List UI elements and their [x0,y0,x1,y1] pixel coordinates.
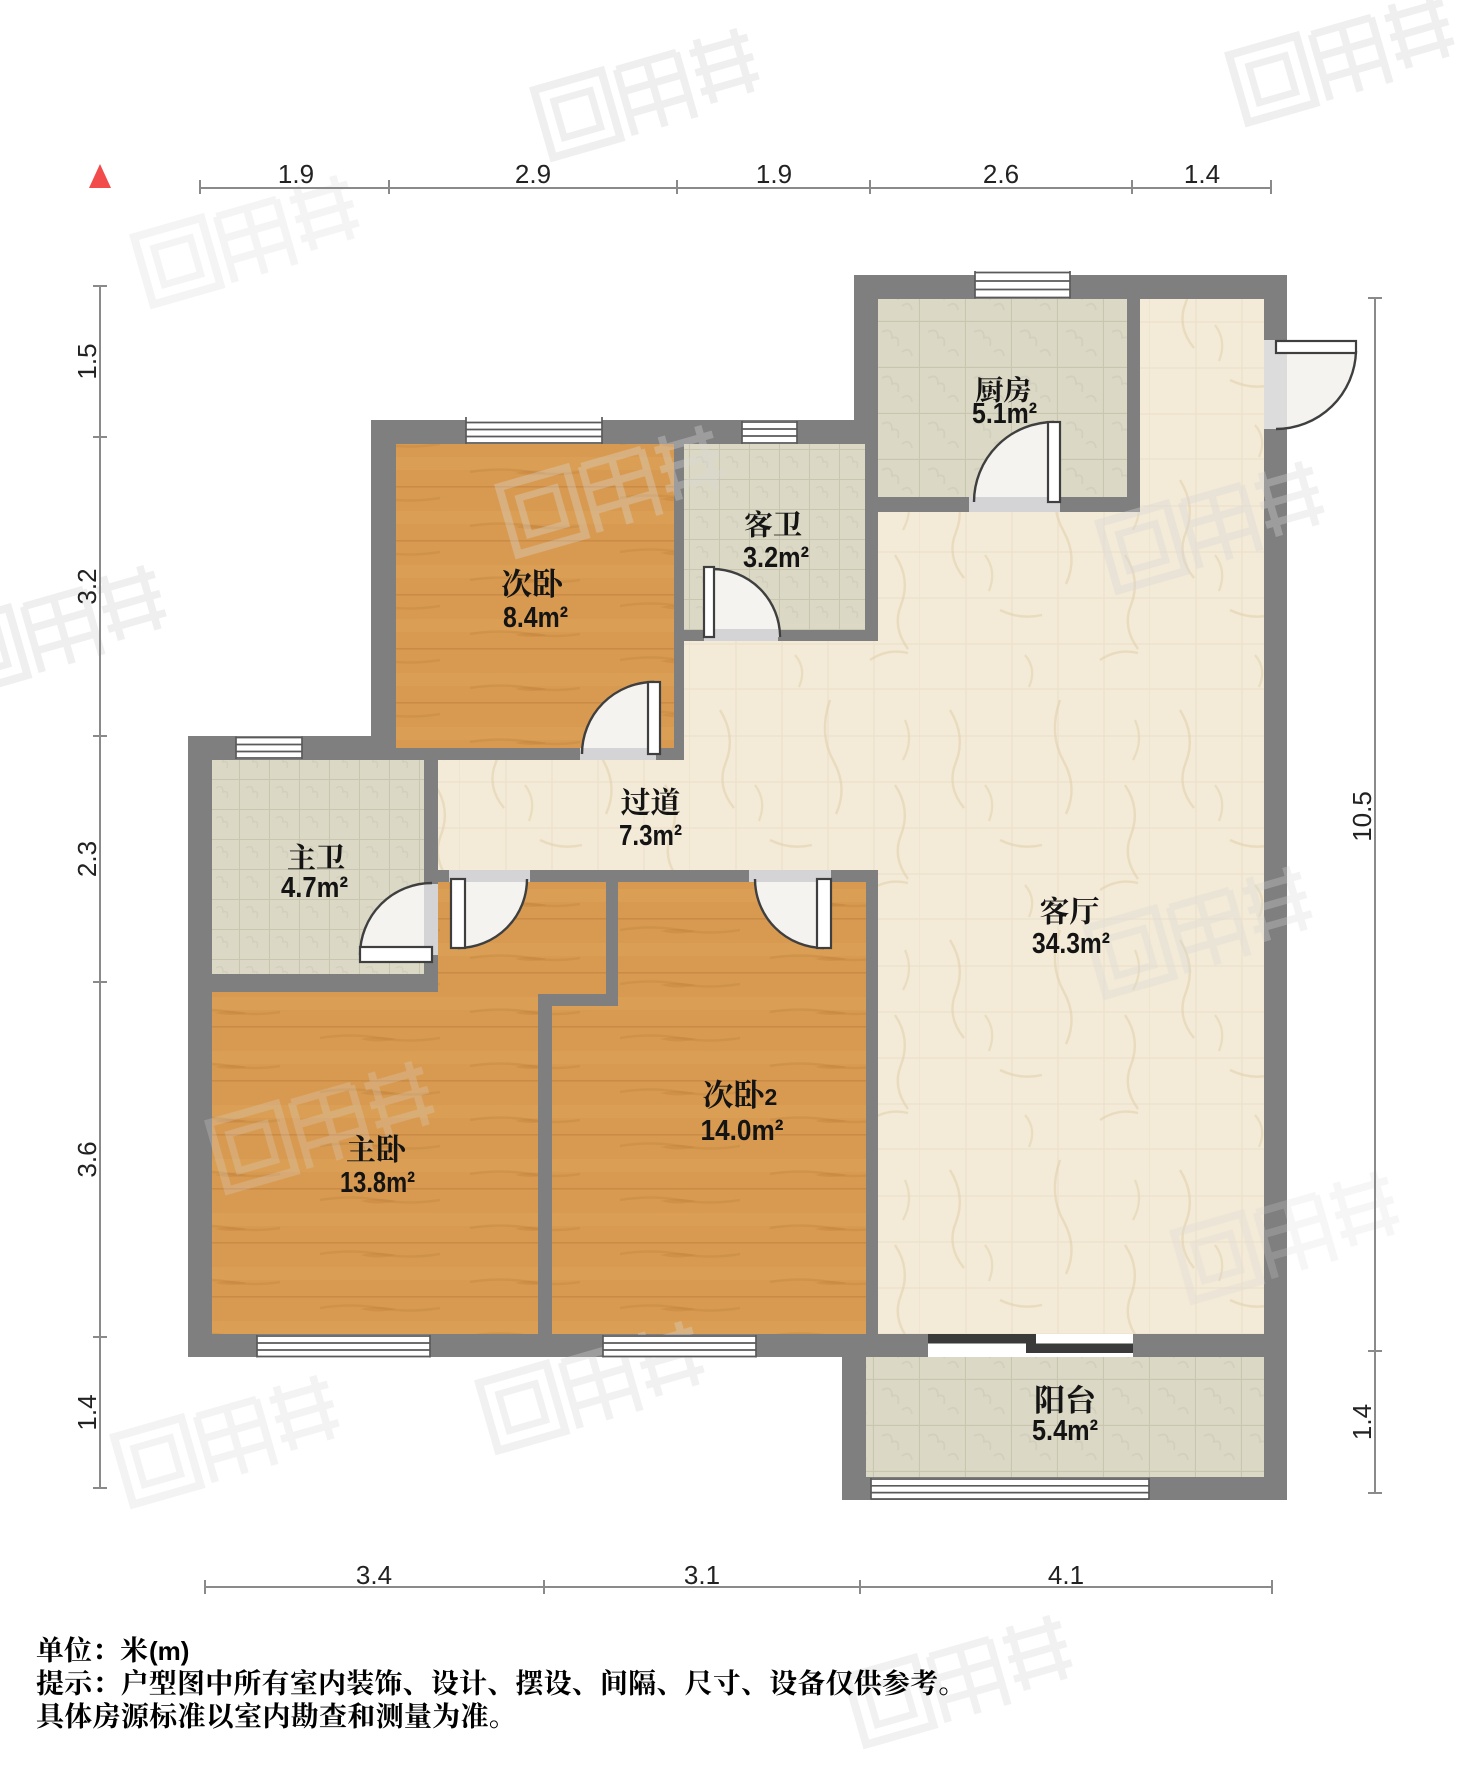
svg-text:(m): (m) [149,1636,189,1666]
svg-text:1.9: 1.9 [756,159,792,189]
svg-text:1.4: 1.4 [72,1394,102,1430]
svg-text:3.6: 3.6 [72,1141,102,1177]
svg-text:1.5: 1.5 [72,343,102,379]
svg-text:34.3m²: 34.3m² [1032,928,1110,960]
svg-text:3.2m²: 3.2m² [743,542,809,574]
svg-text:4.7m²: 4.7m² [281,872,348,904]
svg-text:2.3: 2.3 [72,841,102,877]
svg-text:7.3m²: 7.3m² [619,820,682,852]
svg-text:2.6: 2.6 [983,159,1019,189]
svg-text:3.1: 3.1 [684,1560,720,1590]
svg-text:8.4m²: 8.4m² [503,602,568,634]
svg-text:3.4: 3.4 [356,1560,392,1590]
svg-text:13.8m²: 13.8m² [340,1167,415,1199]
svg-text:1.4: 1.4 [1347,1404,1377,1440]
svg-text:2.9: 2.9 [515,159,551,189]
svg-text:3.2: 3.2 [72,568,102,604]
svg-text:5.4m²: 5.4m² [1032,1415,1098,1447]
svg-text:10.5: 10.5 [1347,791,1377,842]
svg-text:14.0m²: 14.0m² [701,1115,784,1147]
svg-text:1.9: 1.9 [278,159,314,189]
svg-text:4.1: 4.1 [1048,1560,1084,1590]
svg-text:5.1m²: 5.1m² [972,398,1037,430]
svg-text:1.4: 1.4 [1184,159,1220,189]
svg-text:2: 2 [765,1084,778,1110]
